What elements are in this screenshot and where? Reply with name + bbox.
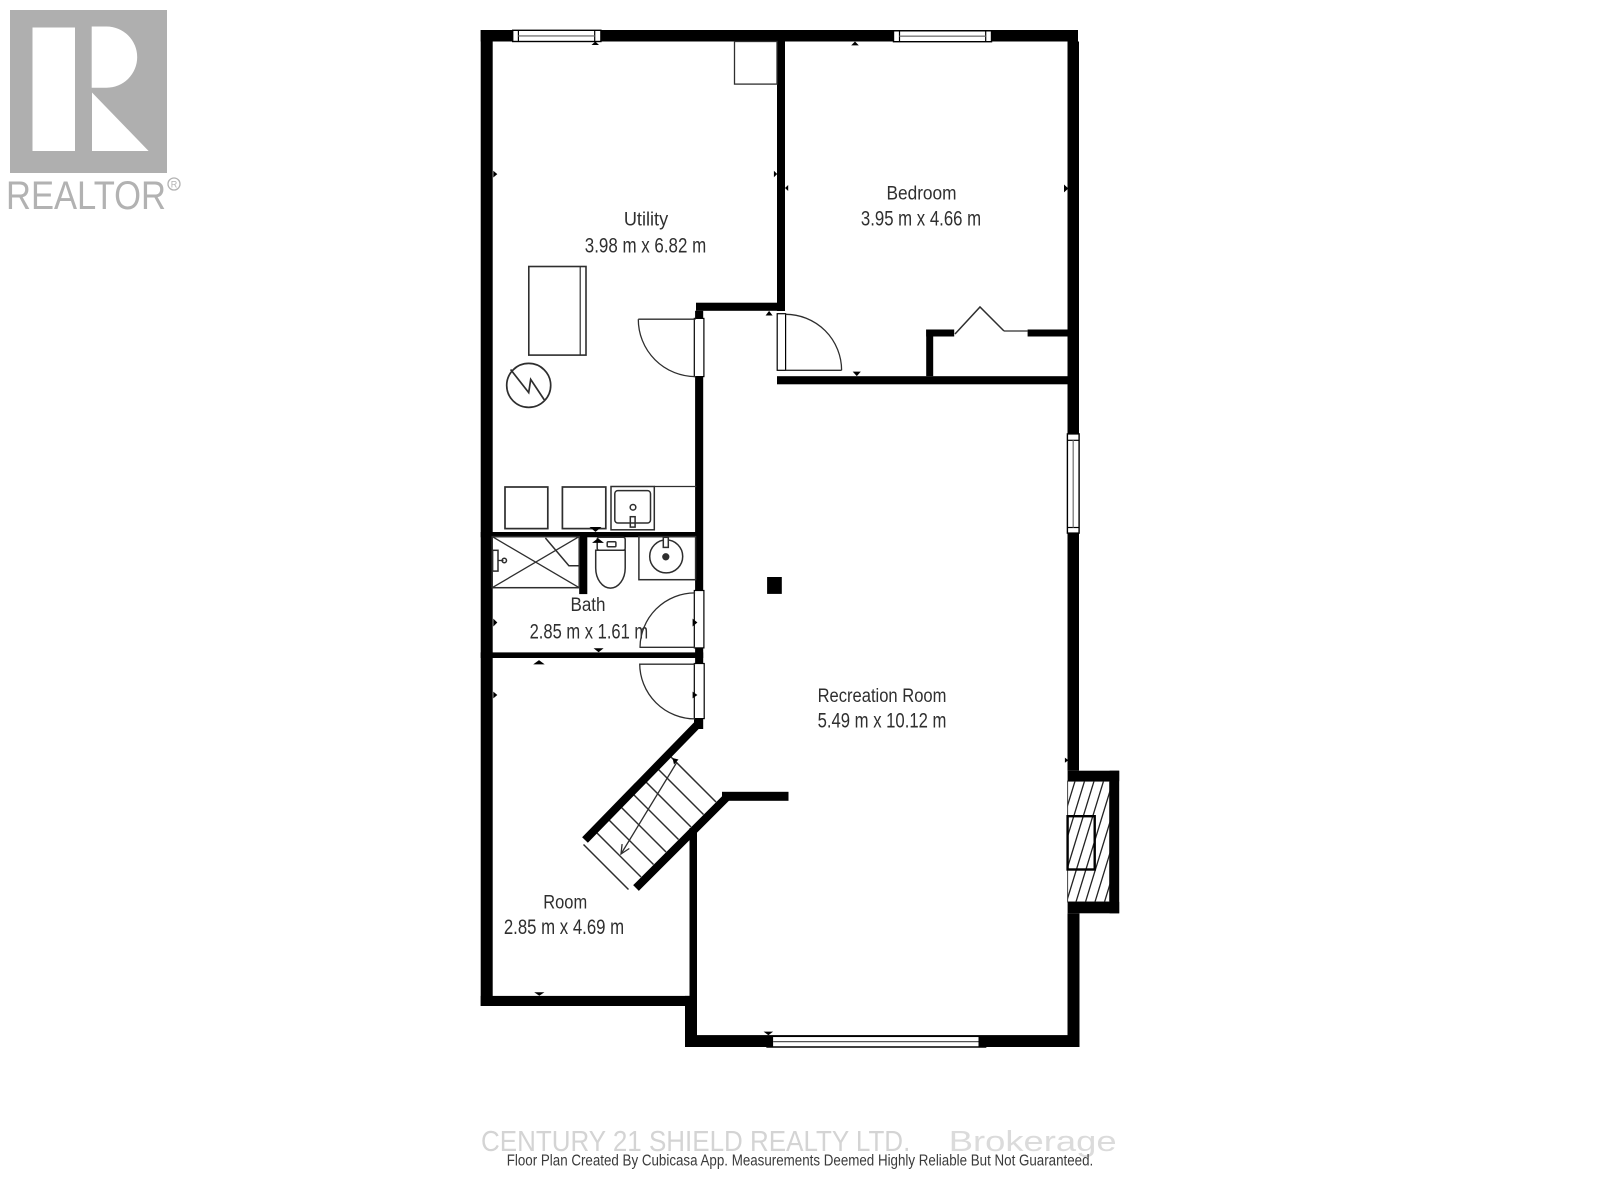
svg-text:Recreation Room: Recreation Room: [818, 686, 947, 707]
svg-text:Bath: Bath: [571, 595, 606, 616]
svg-text:Floor Plan Created By Cubicasa: Floor Plan Created By Cubicasa App. Meas…: [507, 1153, 1094, 1170]
svg-text:2.85 m x 4.69 m: 2.85 m x 4.69 m: [504, 916, 624, 939]
svg-text:Bedroom: Bedroom: [887, 184, 957, 205]
svg-text:REALTOR: REALTOR: [6, 174, 166, 218]
svg-text:3.95 m x 4.66 m: 3.95 m x 4.66 m: [861, 208, 981, 231]
svg-text:Room: Room: [543, 893, 587, 914]
svg-text:Utility: Utility: [624, 210, 669, 231]
svg-text:2.85 m x 1.61 m: 2.85 m x 1.61 m: [530, 620, 649, 643]
svg-text:3.98 m x 6.82 m: 3.98 m x 6.82 m: [585, 235, 706, 258]
svg-text:5.49 m x 10.12 m: 5.49 m x 10.12 m: [818, 709, 947, 732]
svg-text:R: R: [171, 180, 178, 190]
